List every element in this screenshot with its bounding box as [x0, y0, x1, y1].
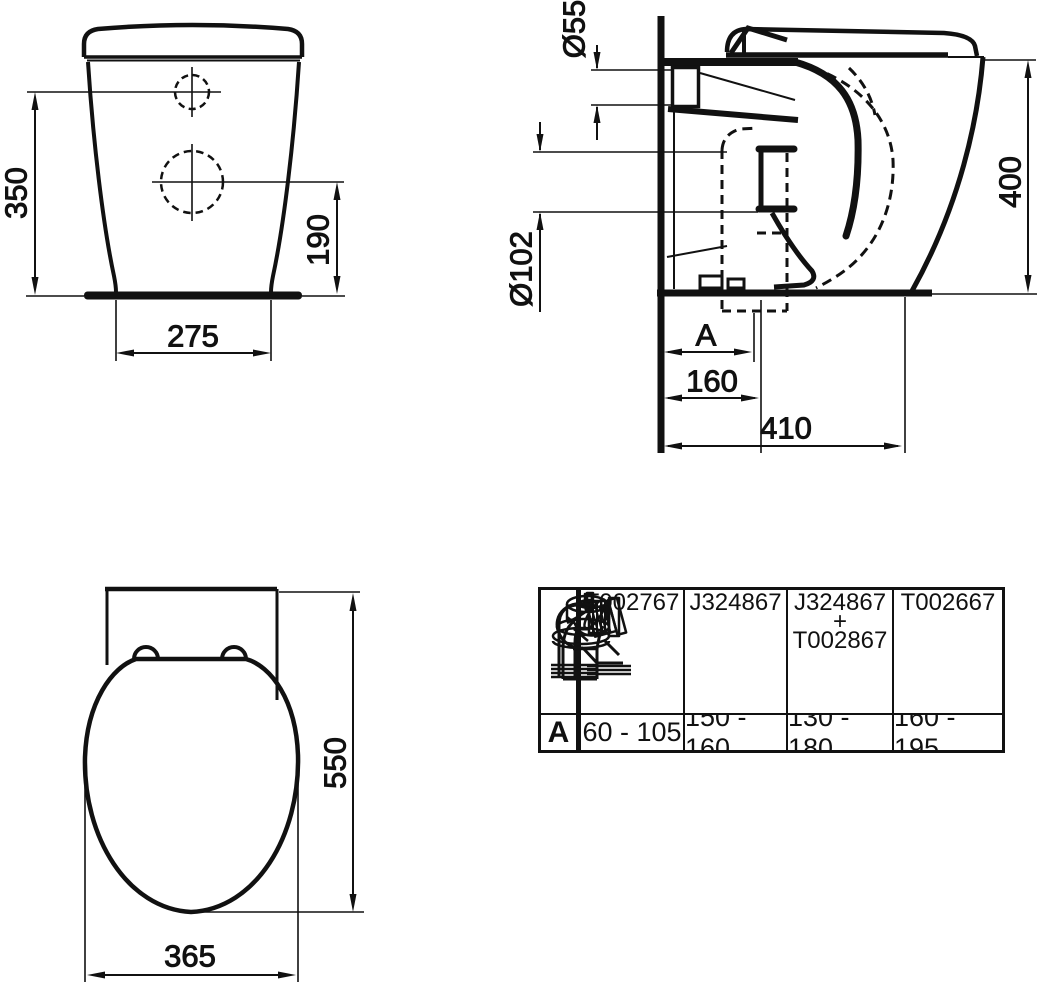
- adaptor-range: 130 - 180: [788, 715, 894, 750]
- adaptor-column-3: J324867 + T002867: [788, 590, 894, 715]
- adaptor-range: 60 - 105: [581, 715, 685, 750]
- technical-drawing-page: 350 190 275: [0, 0, 1039, 984]
- dim-overall-depth: 550: [196, 592, 364, 912]
- pan-front-profile: [912, 57, 983, 291]
- svg-text:160: 160: [686, 364, 738, 399]
- pan-right-side: [271, 62, 299, 292]
- svg-text:Ø55: Ø55: [557, 0, 592, 58]
- side-view: Ø55 Ø102 400: [504, 0, 1038, 453]
- dim-seat-width: 365: [85, 765, 298, 982]
- svg-text:190: 190: [301, 214, 336, 266]
- table-row-label: A: [541, 715, 581, 750]
- dim-outlet-diameter: Ø102: [504, 122, 759, 312]
- svg-text:410: 410: [760, 411, 812, 446]
- pan-base: [84, 292, 302, 300]
- dim-outlet-height: 190: [152, 182, 345, 296]
- adaptor-range: 150 - 160: [685, 715, 788, 750]
- svg-text:550: 550: [318, 737, 353, 789]
- dim-inlet-diameter: Ø55: [557, 0, 673, 140]
- trap-inner-wall: [795, 62, 858, 236]
- svg-text:275: 275: [167, 319, 219, 354]
- seat-outline: [85, 659, 298, 912]
- front-view: 350 190 275: [0, 25, 345, 361]
- dim-base-width: 275: [116, 300, 271, 361]
- dim-pan-height: 400: [985, 60, 1036, 293]
- svg-text:A: A: [696, 318, 717, 353]
- inlet-boss: [673, 68, 699, 107]
- adaptor-table: T002767 J324867: [538, 587, 1005, 753]
- svg-text:Ø102: Ø102: [504, 231, 539, 307]
- plan-view: 550 365: [85, 589, 364, 982]
- lid-outline: [84, 25, 302, 57]
- adaptor-range: 160 - 195: [894, 715, 1002, 750]
- adaptor-column-2: J324867: [685, 590, 788, 715]
- svg-text:365: 365: [164, 939, 216, 974]
- adaptor-code: J324867: [689, 590, 781, 612]
- adaptor-code: T002667: [901, 590, 996, 612]
- trap-outer-wall: [772, 213, 814, 287]
- drawing-canvas: 350 190 275: [0, 0, 1039, 984]
- hidden-bowl-outline: [722, 63, 893, 288]
- outlet-spigot: [759, 149, 794, 210]
- pan-left-side: [88, 62, 116, 292]
- svg-text:400: 400: [993, 156, 1028, 208]
- svg-text:350: 350: [0, 167, 34, 219]
- adaptor-code: J324867 + T002867: [793, 590, 888, 650]
- adaptor-column-4: T002667: [894, 590, 1002, 715]
- dim-adaptor: A: [664, 313, 754, 362]
